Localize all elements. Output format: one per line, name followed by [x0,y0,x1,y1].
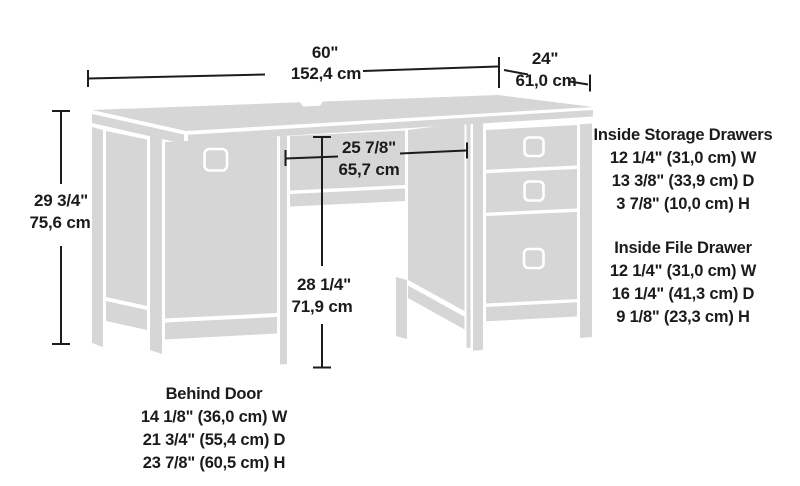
behind-door-spec-block: Behind Door 14 1/8" (36,0 cm) W 21 3/4" … [141,383,287,475]
storage-drawer-2 [486,169,577,213]
kneehole-interior [396,123,465,339]
kneehole-width-inches-label: 25 7/8" [342,139,396,156]
behind-door-depth: 21 3/4" (55,4 cm) D [141,429,287,452]
kneehole-height-inches-label: 28 1/4" [297,276,351,293]
overall-height-inches-label: 29 3/4" [34,192,88,209]
overall-depth-metric-label: 61,0 cm [516,72,577,89]
storage-drawers-height: 3 7/8" (10,0 cm) H [593,193,772,216]
behind-door-height: 23 7/8" (60,5 cm) H [141,452,287,475]
file-drawer [486,212,577,304]
right-pedestal-left-stile [473,122,483,350]
behind-door-title: Behind Door [141,383,287,406]
kneehole-width-metric-label: 65,7 cm [339,161,400,178]
kneehole-left-stile [280,136,287,365]
file-drawer-width: 12 1/4" (31,0 cm) W [610,260,756,283]
right-pedestal [467,122,593,350]
desk-dimension-diagram: 60" 152,4 cm 24" 61,0 cm 29 3/4" 75,6 cm… [0,0,800,486]
door-bottom-rail [165,317,277,340]
kneehole-back-leg [396,277,407,339]
overall-height-metric-label: 75,6 cm [30,214,91,231]
kneehole-height-metric-label: 71,9 cm [292,298,353,315]
file-drawer-title: Inside File Drawer [610,237,756,260]
overall-depth-inches-label: 24" [532,50,558,67]
right-pedestal-bottom-rail [486,302,577,321]
storage-drawers-title: Inside Storage Drawers [593,124,772,147]
overall-width-inches-label: 60" [312,44,338,61]
behind-door-width: 14 1/8" (36,0 cm) W [141,406,287,429]
file-drawer-depth: 16 1/4" (41,3 cm) D [610,283,756,306]
storage-drawers-width: 12 1/4" (31,0 cm) W [593,147,772,170]
left-side-bottom-rail [106,301,147,330]
file-drawer-height: 9 1/8" (23,3 cm) H [610,306,756,329]
overall-width-metric-label: 152,4 cm [291,65,361,82]
door-panel [165,137,277,319]
right-pedestal-right-stile [580,124,592,339]
storage-drawers-spec-block: Inside Storage Drawers 12 1/4" (31,0 cm)… [593,124,772,216]
left-side-stile [92,127,103,347]
left-side-panel [106,131,147,306]
left-pedestal [92,127,287,365]
center-rail [290,189,405,207]
storage-drawers-depth: 13 3/8" (33,9 cm) D [593,170,772,193]
file-drawer-spec-block: Inside File Drawer 12 1/4" (31,0 cm) W 1… [610,237,756,329]
left-front-post [150,134,162,355]
storage-drawer-1 [486,125,577,170]
